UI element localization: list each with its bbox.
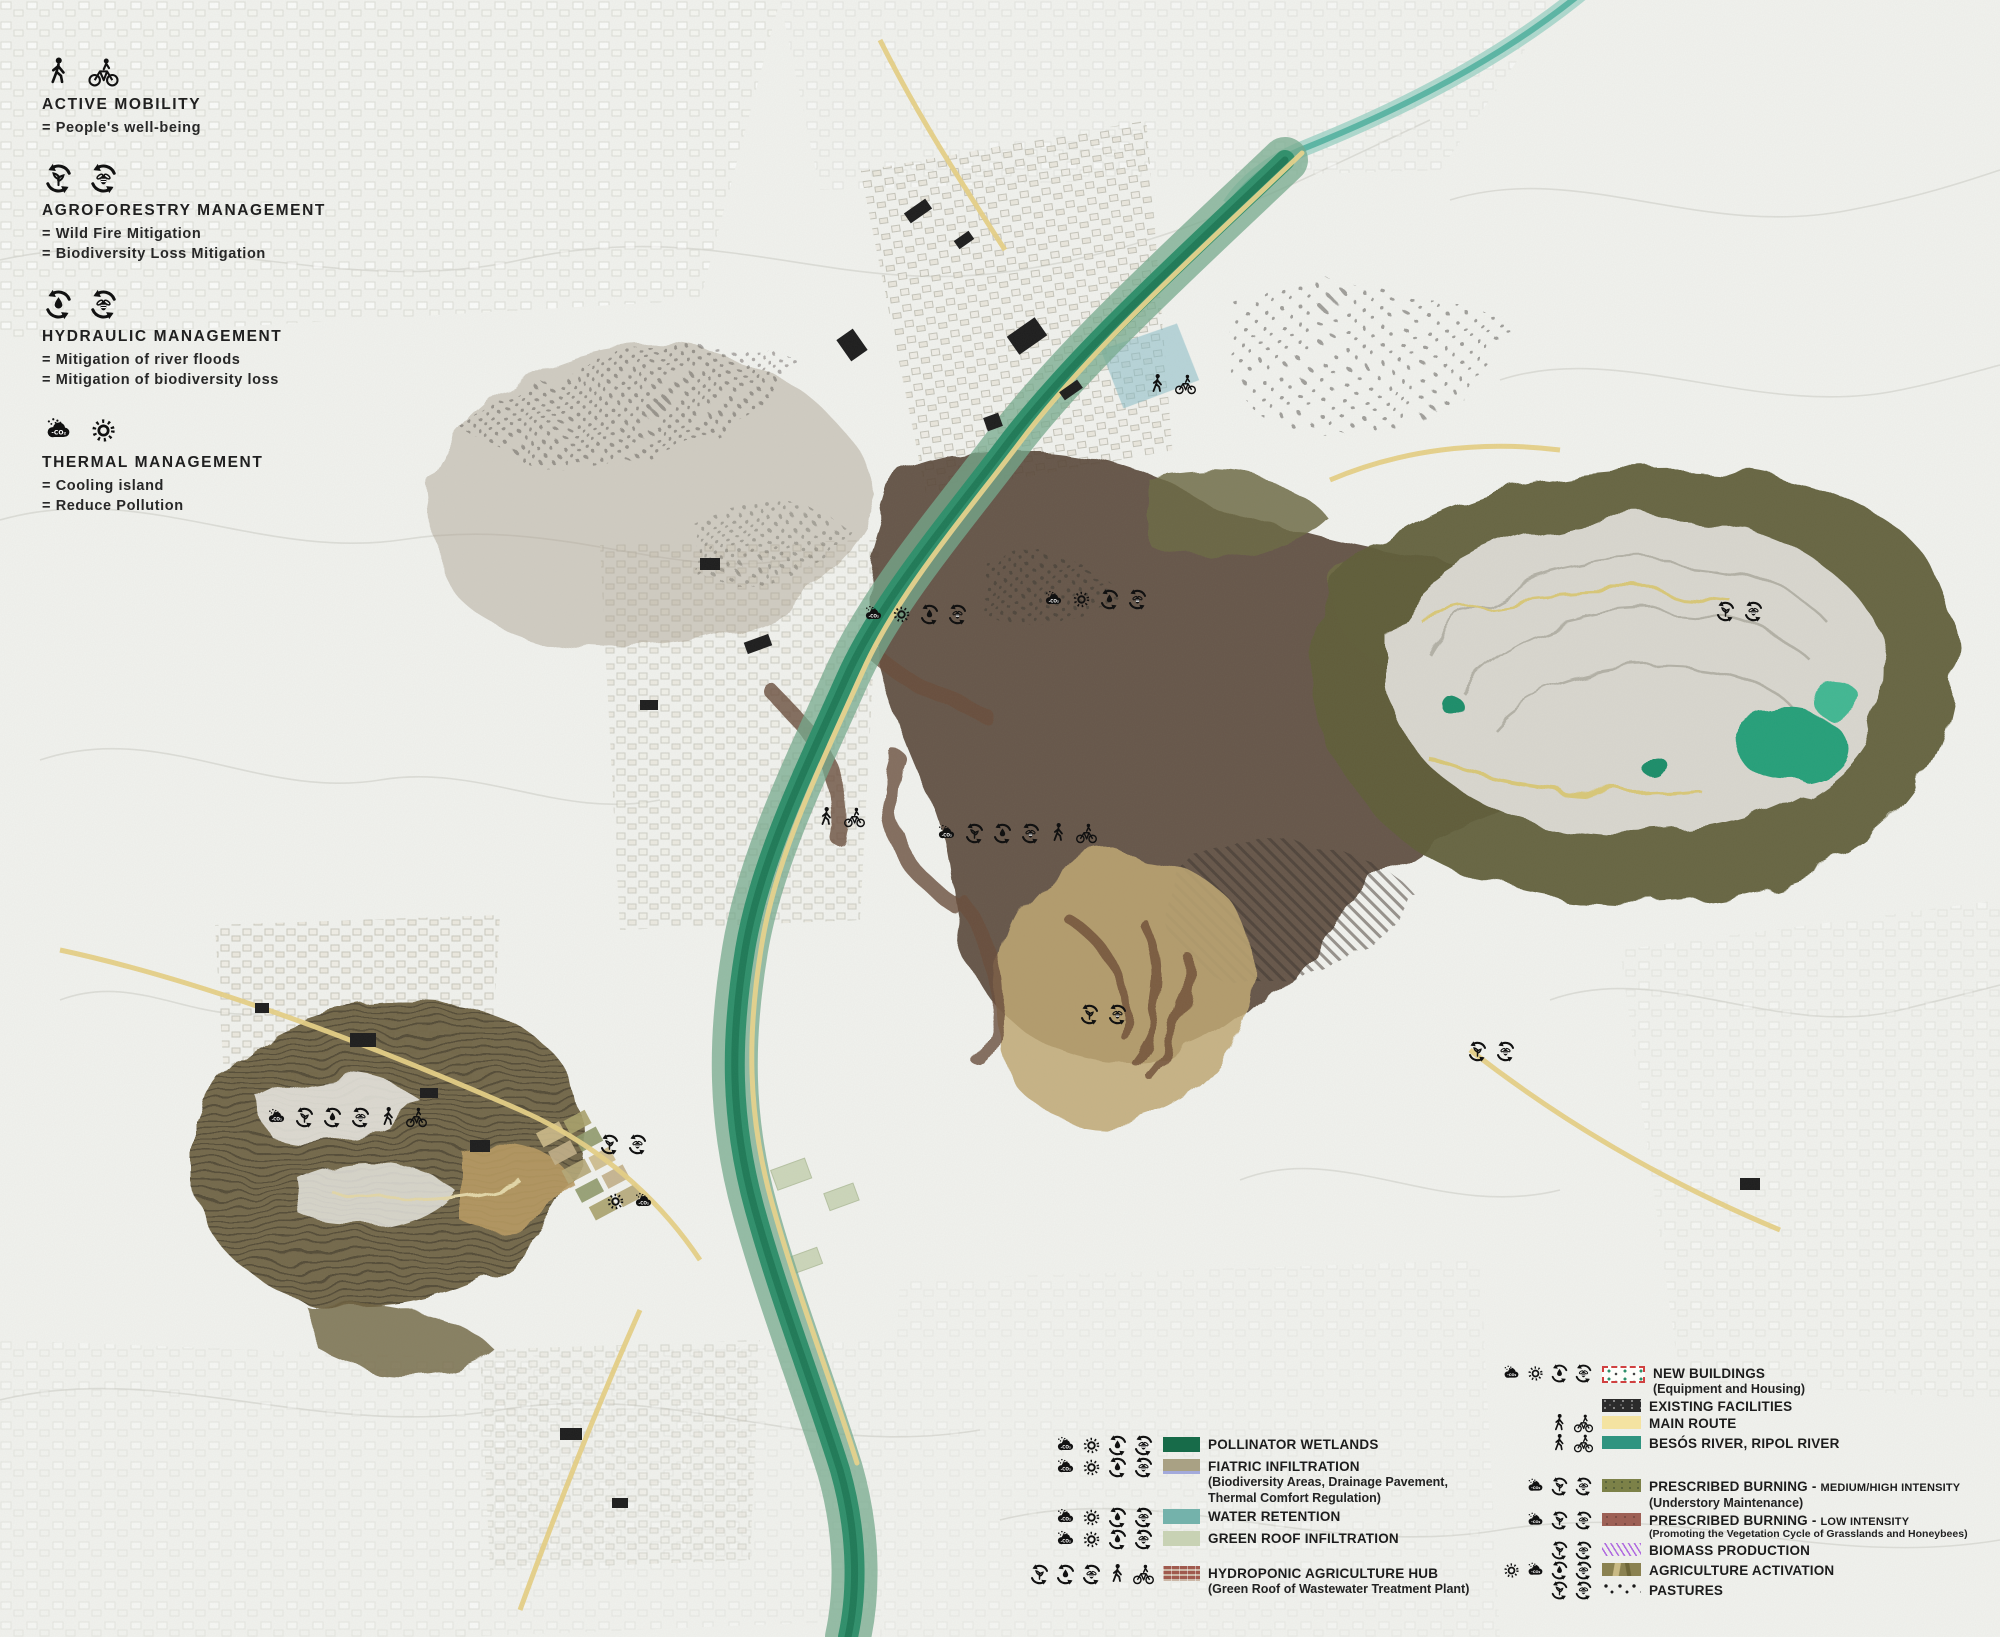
cloud-co2-icon [265,1106,288,1129]
legend-row-biomass-production: BIOMASS PRODUCTION [1488,1543,2000,1561]
cloud-co2-icon [1054,1528,1077,1551]
sun-icon [604,1190,627,1213]
legend-row-text: BIOMASS PRODUCTION [1649,1543,1810,1558]
legend-row-label: HYDROPONIC AGRICULTURE HUB [1208,1566,1469,1581]
swatch-pastures [1602,1583,1641,1596]
map-icon-cluster [598,1133,649,1156]
legend-row-pollinator-wetlands: POLLINATOR WETLANDS [952,1437,1512,1457]
sun-icon [1525,1363,1546,1384]
legend-row-subline: Thermal Comfort Regulation) [1208,1490,1448,1506]
cycle-drop-icon [991,822,1014,845]
legend-section-hydraulic-management: HYDRAULIC MANAGEMENT= Mitigation of rive… [42,288,422,391]
cycle-drop-icon [1106,1456,1129,1479]
map-icon-cluster [1466,1040,1517,1063]
cycle-bee-icon [1080,1563,1103,1586]
bicycle-icon [843,806,866,829]
legend-row-text: PASTURES [1649,1583,1723,1598]
cloud-co2-icon [1054,1506,1077,1529]
cycle-bee-icon [349,1106,372,1129]
legend-row-besos-river: BESÓS RIVER, RIPOL RIVER [1488,1436,2000,1454]
pedestrian-icon [377,1106,400,1129]
swatch-main-route [1602,1416,1641,1429]
cycle-drop-icon [1098,588,1121,611]
cloud-co2-icon [1501,1363,1522,1384]
legend-row-icons [952,1434,1155,1457]
legend-row-hydroponic-agriculture-hub: HYDROPONIC AGRICULTURE HUB(Green Roof of… [952,1566,1512,1597]
cycle-bee-icon [1573,1560,1594,1581]
pedestrian-icon [1549,1433,1570,1454]
cycle-bee-icon [1019,822,1042,845]
cycle-drop-icon [918,603,941,626]
swatch-besos-river [1602,1436,1641,1449]
bicycle-icon [405,1106,428,1129]
cloud-co2-icon [1054,1434,1077,1457]
legend-row-text: PRESCRIBED BURNING - MEDIUM/HIGH INTENSI… [1649,1479,1960,1511]
map-icon-cluster [935,822,1098,845]
legend-row-subline: (Understory Maintenance) [1649,1495,1960,1511]
legend-row-text: MAIN ROUTE [1649,1416,1737,1431]
map-icon-cluster [604,1190,655,1213]
legend-row-label-suffix: MEDIUM/HIGH INTENSITY [1820,1482,1960,1494]
cloud-co2-icon [935,822,958,845]
map-icon-cluster [1714,600,1765,623]
cycle-bee-icon [1132,1506,1155,1529]
legend-row-text: WATER RETENTION [1208,1509,1341,1524]
cycle-leaf-icon [598,1133,621,1156]
legend-water-infiltration: POLLINATOR WETLANDSFIATRIC INFILTRATION(… [952,1437,1512,1599]
legend-section-line: = Mitigation of biodiversity loss [42,370,422,391]
legend-row-icons [952,1506,1155,1529]
legend-row-subline: (Green Roof of Wastewater Treatment Plan… [1208,1581,1469,1597]
legend-row-subline-small: (Promoting the Vegetation Cycle of Grass… [1649,1528,1968,1541]
cycle-bee-icon [1573,1510,1594,1531]
masterplan-map-poster: -CO₂ ACTIVE MOBILITY= People's well-bein… [0,0,2000,1637]
cycle-leaf-icon [1078,1003,1101,1026]
legend-section-agroforestry-management: AGROFORESTRY MANAGEMENT= Wild Fire Mitig… [42,162,422,265]
cloud-co2-icon [1042,588,1065,611]
cloud-co2-icon [1525,1560,1546,1581]
swatch-prescribed-burning-low [1602,1513,1641,1526]
cloud-co2-icon [1525,1476,1546,1497]
legend-row-label: GREEN ROOF INFILTRATION [1208,1531,1399,1546]
pedestrian-icon [1146,373,1169,396]
cycle-drop-icon [1054,1563,1077,1586]
legend-row-text: GREEN ROOF INFILTRATION [1208,1531,1399,1546]
pedestrian-icon [1047,822,1070,845]
swatch-water-retention [1163,1509,1200,1524]
legend-section-active-mobility: ACTIVE MOBILITY= People's well-being [42,56,422,139]
legend-row-label: WATER RETENTION [1208,1509,1341,1524]
sun-icon [1080,1434,1103,1457]
cloud-co2-icon [1054,1456,1077,1479]
legend-section-icons [42,56,422,89]
cycle-drop-icon [1106,1528,1129,1551]
legend-row-icons [1488,1580,1594,1601]
cycle-bee-icon [1132,1434,1155,1457]
legend-landuse: NEW BUILDINGS(Equipment and Housing)EXIS… [1488,1366,2000,1603]
legend-row-icons [1488,1540,1594,1561]
cycle-drop-icon [1106,1434,1129,1457]
legend-row-text: PRESCRIBED BURNING - LOW INTENSITY(Promo… [1649,1513,1968,1541]
cycle-bee-icon [1742,600,1765,623]
legend-row-label: MAIN ROUTE [1649,1416,1737,1431]
map-icon-cluster [815,806,866,829]
cycle-bee-icon [87,162,120,195]
cycle-bee-icon [1132,1528,1155,1551]
legend-row-icons [1488,1413,1594,1434]
cycle-drop-icon [1549,1363,1570,1384]
legend-row-icons [1488,1560,1594,1581]
map-icon-cluster [1146,373,1197,396]
cycle-bee-icon [1494,1040,1517,1063]
legend-row-pastures: PASTURES [1488,1583,2000,1601]
legend-row-icons [952,1528,1155,1551]
cycle-drop-icon [1106,1506,1129,1529]
sun-icon [87,414,120,447]
swatch-existing-facilities [1602,1399,1641,1412]
cloud-co2-icon [632,1190,655,1213]
bicycle-icon [1174,373,1197,396]
bicycle-icon [1573,1413,1594,1434]
legend-section-icons [42,288,422,321]
legend-section-line: = Reduce Pollution [42,496,422,517]
legend-section-title: THERMAL MANAGEMENT [42,454,422,472]
legend-row-icons [1488,1363,1594,1384]
pedestrian-icon [1106,1563,1129,1586]
legend-row-label: FIATRIC INFILTRATION [1208,1459,1448,1474]
legend-section-icons [42,414,422,447]
cycle-drop-icon [42,288,75,321]
sun-icon [1080,1456,1103,1479]
cycle-leaf-icon [293,1106,316,1129]
legend-row-new-buildings: NEW BUILDINGS(Equipment and Housing) [1488,1366,2000,1397]
cycle-bee-icon [626,1133,649,1156]
legend-row-label: POLLINATOR WETLANDS [1208,1437,1379,1452]
legend-section-title: HYDRAULIC MANAGEMENT [42,328,422,346]
legend-row-icons [1488,1510,1594,1531]
sun-icon [1080,1528,1103,1551]
legend-section-title: ACTIVE MOBILITY [42,96,422,114]
legend-row-label: EXISTING FACILITIES [1649,1399,1792,1414]
swatch-new-buildings [1602,1366,1645,1383]
legend-row-label: NEW BUILDINGS [1653,1366,1805,1381]
map-icon-cluster [862,603,969,626]
legend-row-text: AGRICULTURE ACTIVATION [1649,1563,1834,1578]
cycle-leaf-icon [1466,1040,1489,1063]
legend-row-text: HYDROPONIC AGRICULTURE HUB(Green Roof of… [1208,1566,1469,1597]
legend-row-icons [952,1563,1155,1586]
cycle-leaf-icon [1549,1476,1570,1497]
legend-section-icons [42,162,422,195]
legend-section-line: = Biodiversity Loss Mitigation [42,244,422,265]
cycle-leaf-icon [42,162,75,195]
legend-row-subline: (Equipment and Housing) [1653,1381,1805,1397]
legend-row-label-suffix: LOW INTENSITY [1820,1516,1909,1528]
cloud-co2-icon [862,603,885,626]
swatch-biomass-production [1602,1543,1641,1556]
cycle-leaf-icon [1714,600,1737,623]
map-icon-cluster [1042,588,1149,611]
cloud-co2-icon [42,414,75,447]
pedestrian-icon [42,56,75,89]
swatch-pollinator-wetlands [1163,1437,1200,1452]
legend-row-text: BESÓS RIVER, RIPOL RIVER [1649,1436,1840,1451]
cycle-bee-icon [1573,1476,1594,1497]
cloud-co2-icon [1525,1510,1546,1531]
map-icon-cluster [1078,1003,1129,1026]
legend-section-line: = Wild Fire Mitigation [42,224,422,245]
legend-row-main-route: MAIN ROUTE [1488,1416,2000,1434]
swatch-fiatric-infiltration [1163,1459,1200,1474]
legend-row-text: EXISTING FACILITIES [1649,1399,1792,1414]
legend-section-line: = Cooling island [42,476,422,497]
legend-row-label: PRESCRIBED BURNING - MEDIUM/HIGH INTENSI… [1649,1479,1960,1494]
sun-icon [1501,1560,1522,1581]
legend-row-fiatric-infiltration: FIATRIC INFILTRATION(Biodiversity Areas,… [952,1459,1512,1507]
cycle-leaf-icon [1028,1563,1051,1586]
legend-row-icons [1488,1433,1594,1454]
sun-icon [1080,1506,1103,1529]
cycle-bee-icon [1106,1003,1129,1026]
cycle-leaf-icon [1549,1510,1570,1531]
legend-section-line: = People's well-being [42,118,422,139]
cycle-drop-icon [321,1106,344,1129]
legend-row-icons [952,1456,1155,1479]
map-icon-cluster [265,1106,428,1129]
legend-row-label: PASTURES [1649,1583,1723,1598]
cycle-bee-icon [87,288,120,321]
sun-icon [1070,588,1093,611]
legend-row-prescribed-burning-low: PRESCRIBED BURNING - LOW INTENSITY(Promo… [1488,1513,2000,1541]
pedestrian-icon [815,806,838,829]
legend-row-water-retention: WATER RETENTION [952,1509,1512,1529]
cycle-bee-icon [1573,1540,1594,1561]
legend-row-existing-facilities: EXISTING FACILITIES [1488,1399,2000,1414]
swatch-green-roof-infiltration [1163,1531,1200,1546]
cycle-leaf-icon [963,822,986,845]
cycle-bee-icon [1126,588,1149,611]
legend-row-text: POLLINATOR WETLANDS [1208,1437,1379,1452]
legend-row-label: BIOMASS PRODUCTION [1649,1543,1810,1558]
sun-icon [890,603,913,626]
legend-row-label: AGRICULTURE ACTIVATION [1649,1563,1834,1578]
cycle-leaf-icon [1549,1540,1570,1561]
swatch-prescribed-burning-medium-high [1602,1479,1641,1492]
legend-row-agriculture-activation: AGRICULTURE ACTIVATION [1488,1563,2000,1581]
legend-row-label: BESÓS RIVER, RIPOL RIVER [1649,1436,1840,1451]
pedestrian-icon [1549,1413,1570,1434]
cycle-bee-icon [1132,1456,1155,1479]
legend-row-text: FIATRIC INFILTRATION(Biodiversity Areas,… [1208,1459,1448,1507]
legend-row-icons [1488,1476,1594,1497]
legend-section-title: AGROFORESTRY MANAGEMENT [42,202,422,220]
legend-section-thermal-management: THERMAL MANAGEMENT= Cooling island= Redu… [42,414,422,517]
legend-row-subline: (Biodiversity Areas, Drainage Pavement, [1208,1474,1448,1490]
bicycle-icon [1132,1563,1155,1586]
legend-management-goals: ACTIVE MOBILITY= People's well-beingAGRO… [42,56,422,540]
swatch-agriculture-activation [1602,1563,1641,1576]
bicycle-icon [87,56,120,89]
legend-row-green-roof-infiltration: GREEN ROOF INFILTRATION [952,1531,1512,1551]
cycle-leaf-icon [1549,1580,1570,1601]
legend-row-text: NEW BUILDINGS(Equipment and Housing) [1653,1366,1805,1397]
cycle-bee-icon [1573,1580,1594,1601]
bicycle-icon [1075,822,1098,845]
cycle-drop-icon [1549,1560,1570,1581]
bicycle-icon [1573,1433,1594,1454]
cycle-bee-icon [1573,1363,1594,1384]
cycle-bee-icon [946,603,969,626]
legend-row-label: PRESCRIBED BURNING - LOW INTENSITY [1649,1513,1968,1528]
swatch-hydroponic-agriculture-hub [1163,1566,1200,1581]
legend-section-line: = Mitigation of river floods [42,350,422,371]
legend-row-prescribed-burning-medium-high: PRESCRIBED BURNING - MEDIUM/HIGH INTENSI… [1488,1479,2000,1511]
